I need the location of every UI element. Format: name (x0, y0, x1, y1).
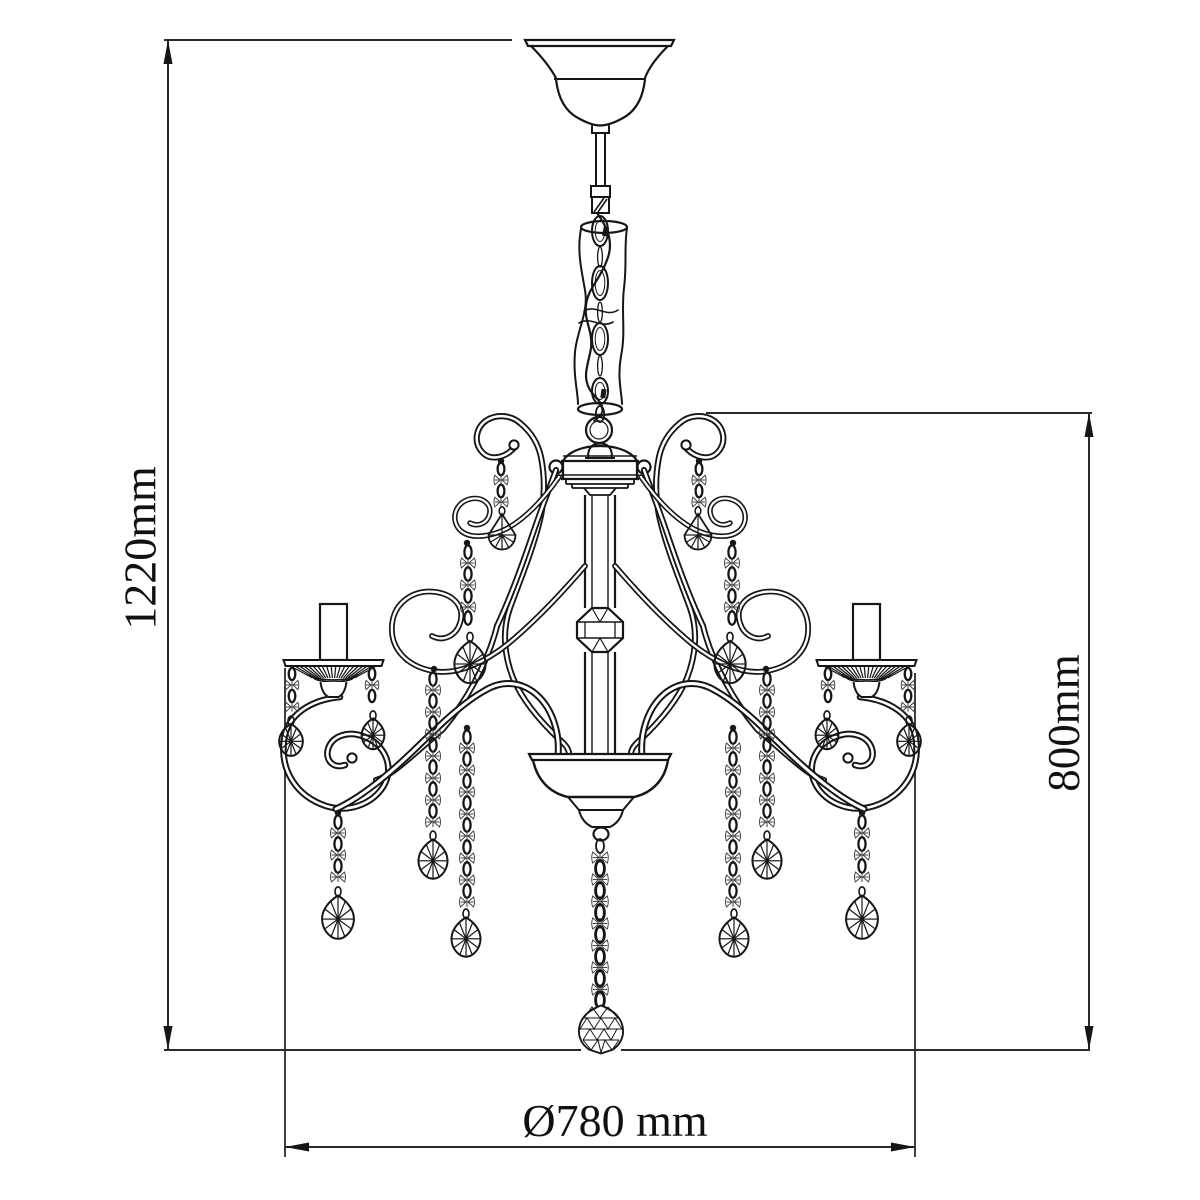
svg-text:800mm: 800mm (1039, 654, 1089, 792)
svg-text:1220mm: 1220mm (115, 466, 166, 630)
svg-text:Ø780 mm: Ø780 mm (522, 1095, 708, 1146)
